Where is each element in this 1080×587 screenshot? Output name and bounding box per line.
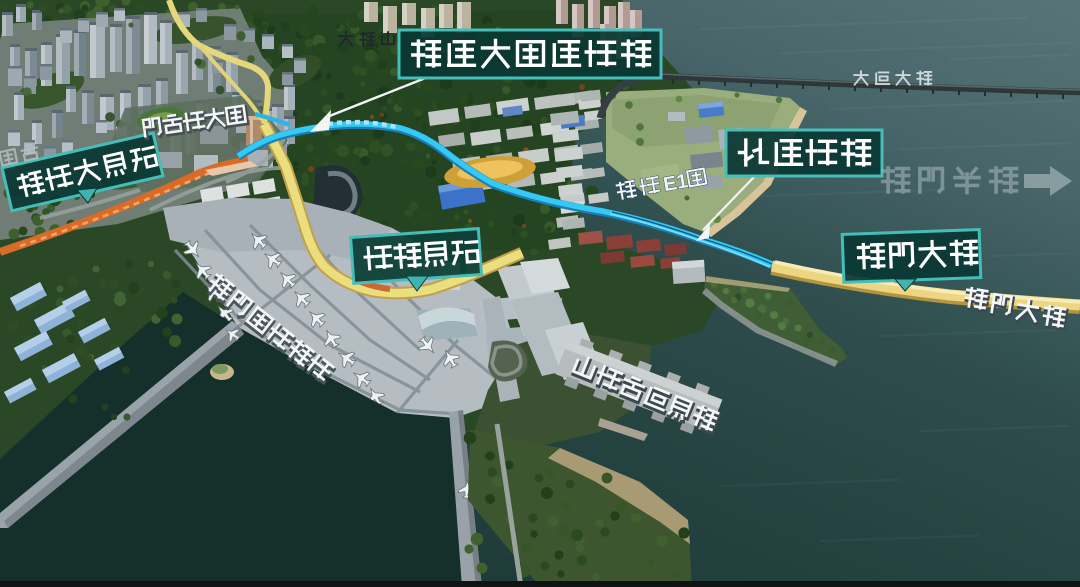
svg-text:E1: E1 <box>662 170 690 196</box>
